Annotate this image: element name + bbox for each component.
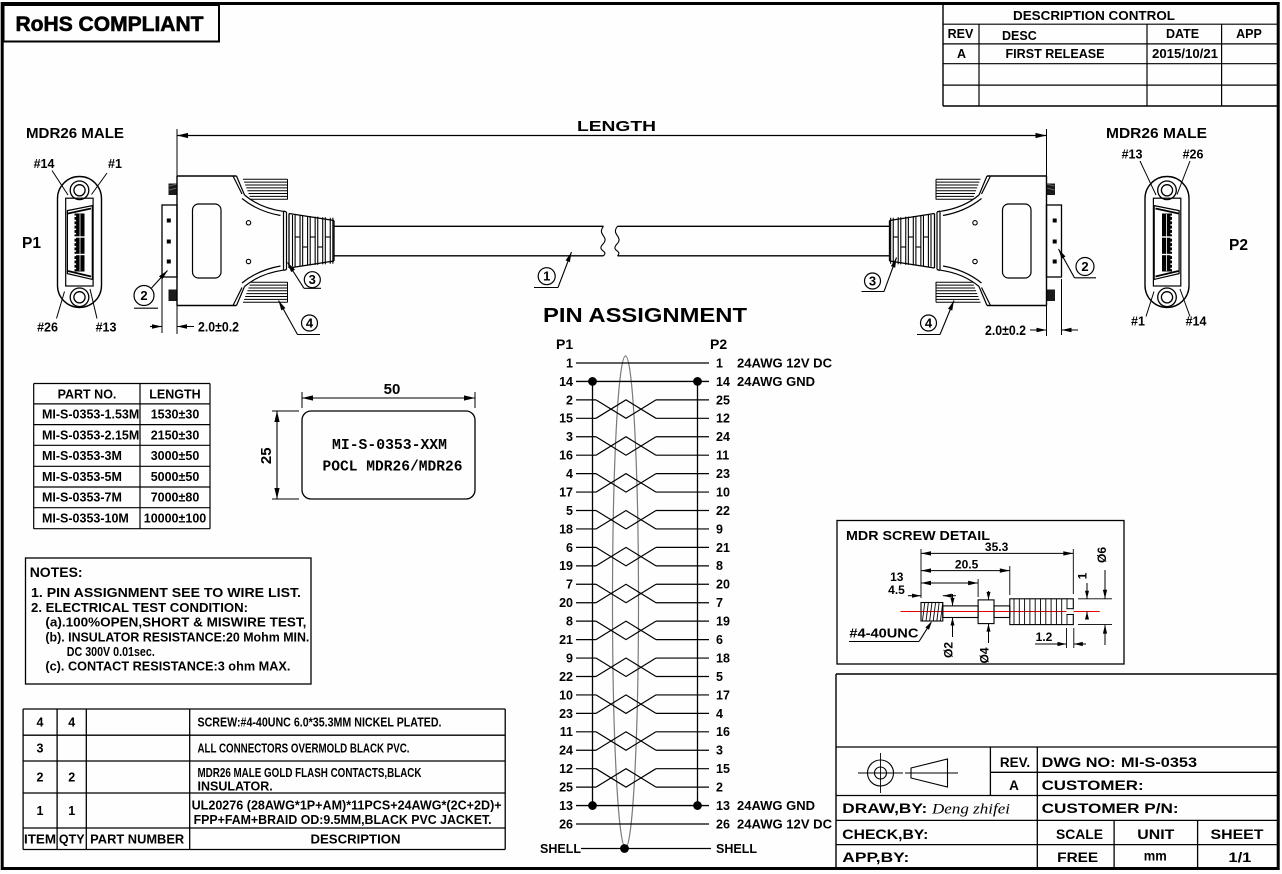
svg-text:24AWG 12V DC: 24AWG 12V DC — [737, 356, 832, 370]
svg-text:FIRST RELEASE: FIRST RELEASE — [1006, 47, 1105, 61]
svg-text:(b). INSULATOR RESISTANCE:20 M: (b). INSULATOR RESISTANCE:20 Mohm MIN. — [45, 630, 309, 644]
svg-text:15: 15 — [559, 412, 573, 426]
svg-text:Ø4: Ø4 — [978, 647, 992, 663]
svg-text:APP,BY:: APP,BY: — [842, 850, 909, 865]
svg-text:1: 1 — [1076, 572, 1090, 579]
svg-text:12: 12 — [559, 762, 573, 776]
svg-text:(a).100%OPEN,SHORT & MISWIRE T: (a).100%OPEN,SHORT & MISWIRE TEST, — [45, 616, 306, 630]
svg-text:7: 7 — [716, 596, 723, 610]
svg-text:1: 1 — [566, 356, 573, 370]
svg-text:CUSTOMER P/N:: CUSTOMER P/N: — [1042, 801, 1179, 816]
svg-text:13: 13 — [716, 799, 730, 813]
svg-text:LENGTH: LENGTH — [149, 388, 200, 402]
svg-text:SCREW:#4-40UNC 6.0*35.3MM NICK: SCREW:#4-40UNC 6.0*35.3MM NICKEL PLATED. — [198, 716, 442, 730]
svg-text:1: 1 — [68, 804, 75, 818]
svg-text:MI-S-0353-XXM: MI-S-0353-XXM — [332, 437, 447, 454]
svg-text:1: 1 — [37, 804, 44, 818]
svg-text:MI-S-0353-3M: MI-S-0353-3M — [42, 449, 122, 463]
svg-text:3: 3 — [37, 742, 44, 756]
svg-text:Deng zhifei: Deng zhifei — [931, 802, 1010, 818]
svg-text:MI-S-0353-5M: MI-S-0353-5M — [42, 470, 122, 484]
svg-text:CHECK,BY:: CHECK,BY: — [842, 827, 928, 842]
svg-text:6: 6 — [566, 541, 573, 555]
svg-text:mm: mm — [1144, 848, 1167, 863]
svg-text:#1: #1 — [108, 157, 122, 171]
svg-text:24AWG 12V DC: 24AWG 12V DC — [737, 817, 832, 831]
svg-text:1530±30: 1530±30 — [151, 408, 200, 422]
svg-text:LENGTH: LENGTH — [577, 118, 656, 135]
svg-text:ITEM: ITEM — [24, 833, 56, 847]
svg-text:MI-S-0353: MI-S-0353 — [1121, 755, 1198, 770]
svg-text:1: 1 — [716, 356, 723, 370]
svg-text:#14: #14 — [34, 157, 55, 171]
svg-text:2150±30: 2150±30 — [151, 428, 200, 442]
svg-text:P2: P2 — [710, 336, 727, 352]
svg-text:3: 3 — [869, 274, 876, 289]
svg-text:3: 3 — [309, 272, 316, 287]
svg-text:PIN ASSIGNMENT: PIN ASSIGNMENT — [543, 305, 747, 327]
svg-text:23: 23 — [559, 707, 573, 721]
svg-text:MI-S-0353-1.53M: MI-S-0353-1.53M — [42, 408, 139, 422]
svg-text:2.0±0.2: 2.0±0.2 — [198, 320, 239, 335]
svg-text:20.5: 20.5 — [955, 558, 979, 572]
svg-text:19: 19 — [559, 559, 573, 573]
svg-text:2015/10/21: 2015/10/21 — [1152, 47, 1218, 61]
svg-text:UL20276 (28AWG*1P+AM)*11PCS+24: UL20276 (28AWG*1P+AM)*11PCS+24AWG*(2C+2D… — [192, 799, 502, 813]
svg-text:7: 7 — [566, 578, 573, 592]
svg-text:50: 50 — [384, 381, 401, 398]
svg-text:#1: #1 — [1131, 315, 1145, 329]
svg-text:MI-S-0353-2.15M: MI-S-0353-2.15M — [42, 428, 139, 442]
svg-text:17: 17 — [716, 688, 730, 702]
svg-text:6: 6 — [716, 633, 723, 647]
svg-text:1.2: 1.2 — [1036, 630, 1053, 644]
svg-text:(c). CONTACT RESISTANCE:3 ohm: (c). CONTACT RESISTANCE:3 ohm MAX. — [45, 660, 290, 674]
svg-text:26: 26 — [559, 817, 573, 831]
svg-text:18: 18 — [559, 522, 573, 536]
svg-text:DESC: DESC — [1002, 29, 1037, 43]
svg-text:DESCRIPTION CONTROL: DESCRIPTION CONTROL — [1013, 9, 1175, 23]
svg-text:35.3: 35.3 — [985, 540, 1009, 554]
svg-text:20: 20 — [559, 596, 573, 610]
svg-text:P2: P2 — [1229, 237, 1248, 254]
svg-text:19: 19 — [716, 615, 730, 629]
svg-text:24: 24 — [716, 430, 730, 444]
svg-text:POCL MDR26/MDR26: POCL MDR26/MDR26 — [323, 459, 463, 476]
svg-text:INSULATOR.: INSULATOR. — [198, 780, 273, 794]
svg-text:22: 22 — [559, 670, 573, 684]
svg-text:10: 10 — [559, 688, 573, 702]
svg-text:MI-S-0353-10M: MI-S-0353-10M — [42, 512, 129, 526]
svg-text:4: 4 — [716, 707, 723, 721]
svg-text:24: 24 — [559, 744, 573, 758]
svg-text:5: 5 — [716, 670, 723, 684]
svg-text:1/1: 1/1 — [1228, 850, 1252, 865]
svg-text:DATE: DATE — [1166, 27, 1199, 41]
svg-text:25: 25 — [258, 447, 275, 464]
svg-text:13: 13 — [559, 799, 573, 813]
svg-text:26: 26 — [716, 817, 730, 831]
svg-text:A: A — [1009, 778, 1019, 793]
svg-text:8: 8 — [566, 615, 573, 629]
svg-text:DRAW,BY:: DRAW,BY: — [842, 801, 927, 816]
svg-text:16: 16 — [716, 725, 730, 739]
svg-text:REV: REV — [948, 27, 974, 41]
svg-text:10: 10 — [716, 485, 730, 499]
svg-text:MDR26 MALE GOLD FLASH CONTACTS: MDR26 MALE GOLD FLASH CONTACTS,BLACK — [198, 766, 422, 780]
svg-text:#4-40UNC: #4-40UNC — [849, 627, 918, 641]
svg-text:9: 9 — [566, 651, 573, 665]
svg-text:14: 14 — [559, 375, 573, 389]
svg-text:DESCRIPTION: DESCRIPTION — [311, 833, 401, 847]
svg-text:7000±80: 7000±80 — [151, 491, 200, 505]
svg-text:16: 16 — [559, 449, 573, 463]
svg-text:1. PIN ASSIGNMENT SEE TO WIRE: 1. PIN ASSIGNMENT SEE TO WIRE LIST. — [31, 586, 301, 600]
svg-text:4.5: 4.5 — [888, 583, 905, 597]
svg-text:2: 2 — [1081, 259, 1088, 274]
svg-text:2: 2 — [716, 781, 723, 795]
svg-text:ALL CONNECTORS OVERMOLD BLACK: ALL CONNECTORS OVERMOLD BLACK PVC. — [198, 742, 410, 756]
svg-text:MDR26 MALE: MDR26 MALE — [26, 125, 124, 142]
svg-text:FREE: FREE — [1057, 850, 1098, 865]
svg-text:5: 5 — [566, 504, 573, 518]
svg-text:4: 4 — [37, 716, 44, 730]
svg-text:A: A — [957, 47, 966, 61]
svg-text:DC 300V 0.01sec.: DC 300V 0.01sec. — [67, 645, 155, 659]
svg-text:MDR SCREW DETAIL: MDR SCREW DETAIL — [846, 529, 990, 543]
svg-text:Ø2: Ø2 — [942, 642, 956, 658]
svg-text:DWG NO:: DWG NO: — [1042, 755, 1116, 770]
svg-text:PART NO.: PART NO. — [58, 388, 117, 402]
svg-text:RoHS COMPLIANT: RoHS COMPLIANT — [16, 13, 204, 36]
svg-text:SHELL: SHELL — [540, 842, 581, 856]
svg-text:21: 21 — [559, 633, 573, 647]
svg-text:1: 1 — [543, 269, 550, 284]
svg-text:#13: #13 — [96, 321, 117, 335]
svg-text:12: 12 — [716, 412, 730, 426]
svg-text:P1: P1 — [22, 235, 41, 252]
svg-text:QTY: QTY — [59, 833, 85, 847]
svg-text:PART NUMBER: PART NUMBER — [90, 833, 184, 847]
svg-text:#13: #13 — [1122, 148, 1143, 162]
svg-text:3: 3 — [716, 744, 723, 758]
svg-text:21: 21 — [716, 541, 730, 555]
svg-text:#26: #26 — [1183, 148, 1204, 162]
svg-text:14: 14 — [716, 375, 730, 389]
svg-text:FPP+FAM+BRAID OD:9.5MM,BLACK P: FPP+FAM+BRAID OD:9.5MM,BLACK PVC JACKET. — [194, 813, 492, 827]
svg-text:#14: #14 — [1186, 315, 1207, 329]
svg-text:13: 13 — [890, 570, 904, 584]
svg-text:CUSTOMER:: CUSTOMER: — [1042, 778, 1144, 793]
svg-text:NOTES:: NOTES: — [30, 564, 83, 580]
svg-text:2: 2 — [37, 771, 44, 785]
svg-text:P1: P1 — [556, 336, 573, 352]
svg-text:MDR26 MALE: MDR26 MALE — [1106, 125, 1207, 142]
svg-text:4: 4 — [68, 716, 75, 730]
svg-text:8: 8 — [716, 559, 723, 573]
svg-text:11: 11 — [560, 725, 573, 739]
svg-text:Ø6: Ø6 — [1095, 547, 1109, 563]
svg-text:2.0±0.2: 2.0±0.2 — [985, 323, 1026, 338]
svg-text:2. ELECTRICAL TEST CONDITION:: 2. ELECTRICAL TEST CONDITION: — [31, 601, 248, 615]
svg-text:REV.: REV. — [1000, 755, 1030, 770]
svg-text:22: 22 — [716, 504, 730, 518]
svg-text:23: 23 — [716, 467, 730, 481]
svg-text:10000±100: 10000±100 — [144, 512, 207, 526]
svg-text:3: 3 — [566, 430, 573, 444]
svg-text:17: 17 — [559, 485, 573, 499]
svg-text:3000±50: 3000±50 — [151, 449, 200, 463]
svg-text:24AWG GND: 24AWG GND — [737, 799, 815, 813]
svg-text:UNIT: UNIT — [1137, 827, 1175, 842]
svg-text:SHELL: SHELL — [716, 842, 757, 856]
svg-text:24AWG GND: 24AWG GND — [737, 375, 815, 389]
svg-text:4: 4 — [566, 467, 573, 481]
svg-text:4: 4 — [306, 316, 314, 331]
svg-text:MI-S-0353-7M: MI-S-0353-7M — [42, 491, 122, 505]
svg-text:2: 2 — [68, 771, 75, 785]
svg-text:20: 20 — [716, 578, 730, 592]
svg-text:4: 4 — [925, 316, 933, 331]
svg-text:2: 2 — [140, 288, 147, 303]
svg-text:25: 25 — [716, 393, 730, 407]
svg-text:2: 2 — [566, 393, 573, 407]
svg-text:25: 25 — [559, 781, 573, 795]
svg-text:#26: #26 — [37, 321, 58, 335]
svg-text:5000±50: 5000±50 — [151, 470, 200, 484]
svg-text:18: 18 — [716, 651, 730, 665]
svg-text:SCALE: SCALE — [1056, 827, 1103, 842]
svg-text:SHEET: SHEET — [1211, 827, 1265, 842]
svg-text:APP: APP — [1236, 27, 1262, 41]
svg-text:9: 9 — [716, 522, 723, 536]
svg-text:15: 15 — [716, 762, 730, 776]
svg-text:11: 11 — [716, 449, 729, 463]
